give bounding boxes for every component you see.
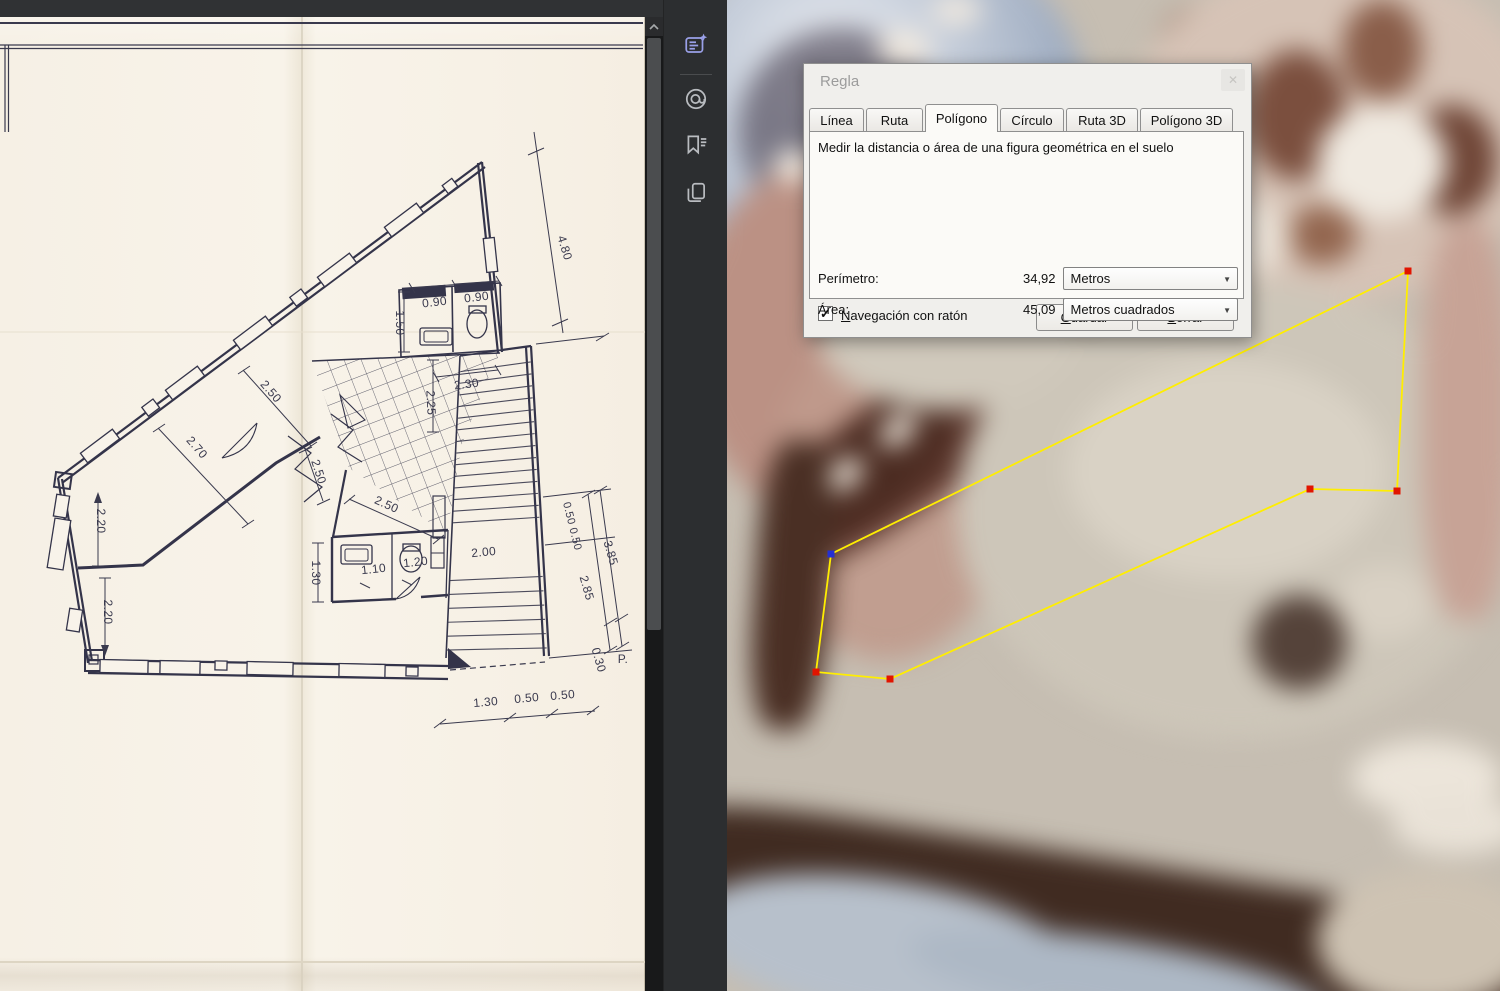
dimension-label: 0.90	[463, 289, 489, 306]
tab-label: Ruta 3D	[1078, 113, 1126, 128]
ruler-dialog: Regla ✕ Línea Ruta Polígono Círculo Ruta…	[803, 63, 1252, 338]
dimension-label: 0.90	[421, 294, 447, 311]
scrollbar	[645, 17, 663, 991]
tab-label: Polígono	[936, 111, 987, 126]
area-row: Área: 45,09 Metros cuadrados ▼	[818, 298, 1238, 321]
page-thumbnails-icon[interactable]	[683, 180, 709, 206]
satellite-map[interactable]: Regla ✕ Línea Ruta Polígono Círculo Ruta…	[727, 0, 1500, 991]
dimension-label: 2.20	[94, 509, 108, 534]
dimension-label: 2.70	[184, 433, 211, 461]
dimension-label: 1.10	[360, 561, 386, 578]
chevron-down-icon: ▼	[1223, 275, 1231, 284]
tab-poligono-3d[interactable]: Polígono 3D	[1140, 108, 1233, 131]
dimension-label: P.	[618, 652, 629, 666]
perimeter-unit-select[interactable]: Metros ▼	[1063, 267, 1238, 290]
scroll-up-button[interactable]	[645, 17, 663, 36]
sheet-border	[0, 23, 643, 132]
dialog-description: Medir la distancia o área de una figura …	[818, 140, 1228, 155]
tab-label: Línea	[820, 113, 853, 128]
floor-plan-drawing: 4.80 1.50 0.90 0.90 2.50 2.70 2.20 2.20 …	[0, 0, 645, 991]
perimeter-unit-value: Metros	[1071, 271, 1111, 286]
bookmarks-icon[interactable]	[683, 132, 709, 158]
tab-page: Medir la distancia o área de una figura …	[809, 131, 1244, 299]
dimension-label: 2.00	[471, 544, 497, 560]
tab-label: Ruta	[881, 113, 908, 128]
scrollbar-thumb[interactable]	[647, 38, 661, 630]
area-label: Área:	[818, 302, 966, 317]
perimeter-row: Perímetro: 34,92 Metros ▼	[818, 267, 1238, 290]
dimension-label: 0.50	[550, 687, 576, 703]
close-icon[interactable]: ✕	[1221, 69, 1245, 91]
ai-assistant-icon[interactable]	[683, 32, 709, 58]
dimension-label: 4.80	[554, 234, 575, 262]
dimension-label: 1.30	[473, 694, 499, 710]
tab-ruta[interactable]: Ruta	[866, 108, 923, 131]
area-unit-value: Metros cuadrados	[1071, 302, 1175, 317]
area-unit-select[interactable]: Metros cuadrados ▼	[1063, 298, 1238, 321]
chevron-down-icon: ▼	[1223, 306, 1231, 315]
dimension-label: 1.50	[393, 311, 407, 336]
tab-circulo[interactable]: Círculo	[1000, 108, 1064, 131]
dimension-label: 0.50	[514, 690, 540, 706]
page-creases	[0, 17, 645, 991]
dimension-label: 3.85	[601, 539, 621, 567]
comments-icon[interactable]	[683, 86, 709, 112]
dimension-label: 2.25	[423, 390, 438, 416]
dimension-label: 0.30	[589, 646, 609, 674]
tab-ruta-3d[interactable]: Ruta 3D	[1066, 108, 1138, 131]
dimension-label: 2.20	[101, 600, 115, 625]
dimension-label: 0.50 0.50	[560, 501, 584, 552]
perimeter-value: 34,92	[966, 271, 1055, 286]
chevron-up-icon	[647, 21, 661, 33]
tab-linea[interactable]: Línea	[809, 108, 864, 131]
pdf-tool-rail	[663, 0, 728, 991]
dialog-title: Regla	[820, 73, 859, 90]
rail-divider	[680, 74, 712, 75]
tab-label: Círculo	[1011, 113, 1052, 128]
pdf-viewer-panel: 4.80 1.50 0.90 0.90 2.50 2.70 2.20 2.20 …	[0, 0, 727, 991]
dimension-label: 1.20	[402, 554, 428, 571]
dimension-label: 2.50	[308, 458, 329, 486]
area-value: 45,09	[966, 302, 1055, 317]
tab-poligono[interactable]: Polígono	[925, 104, 998, 132]
outer-walls	[58, 162, 549, 679]
perimeter-label: Perímetro:	[818, 271, 966, 286]
dimension-label: 2.85	[577, 574, 597, 602]
dimension-label: 1.30	[309, 561, 323, 586]
tab-label: Polígono 3D	[1151, 113, 1223, 128]
